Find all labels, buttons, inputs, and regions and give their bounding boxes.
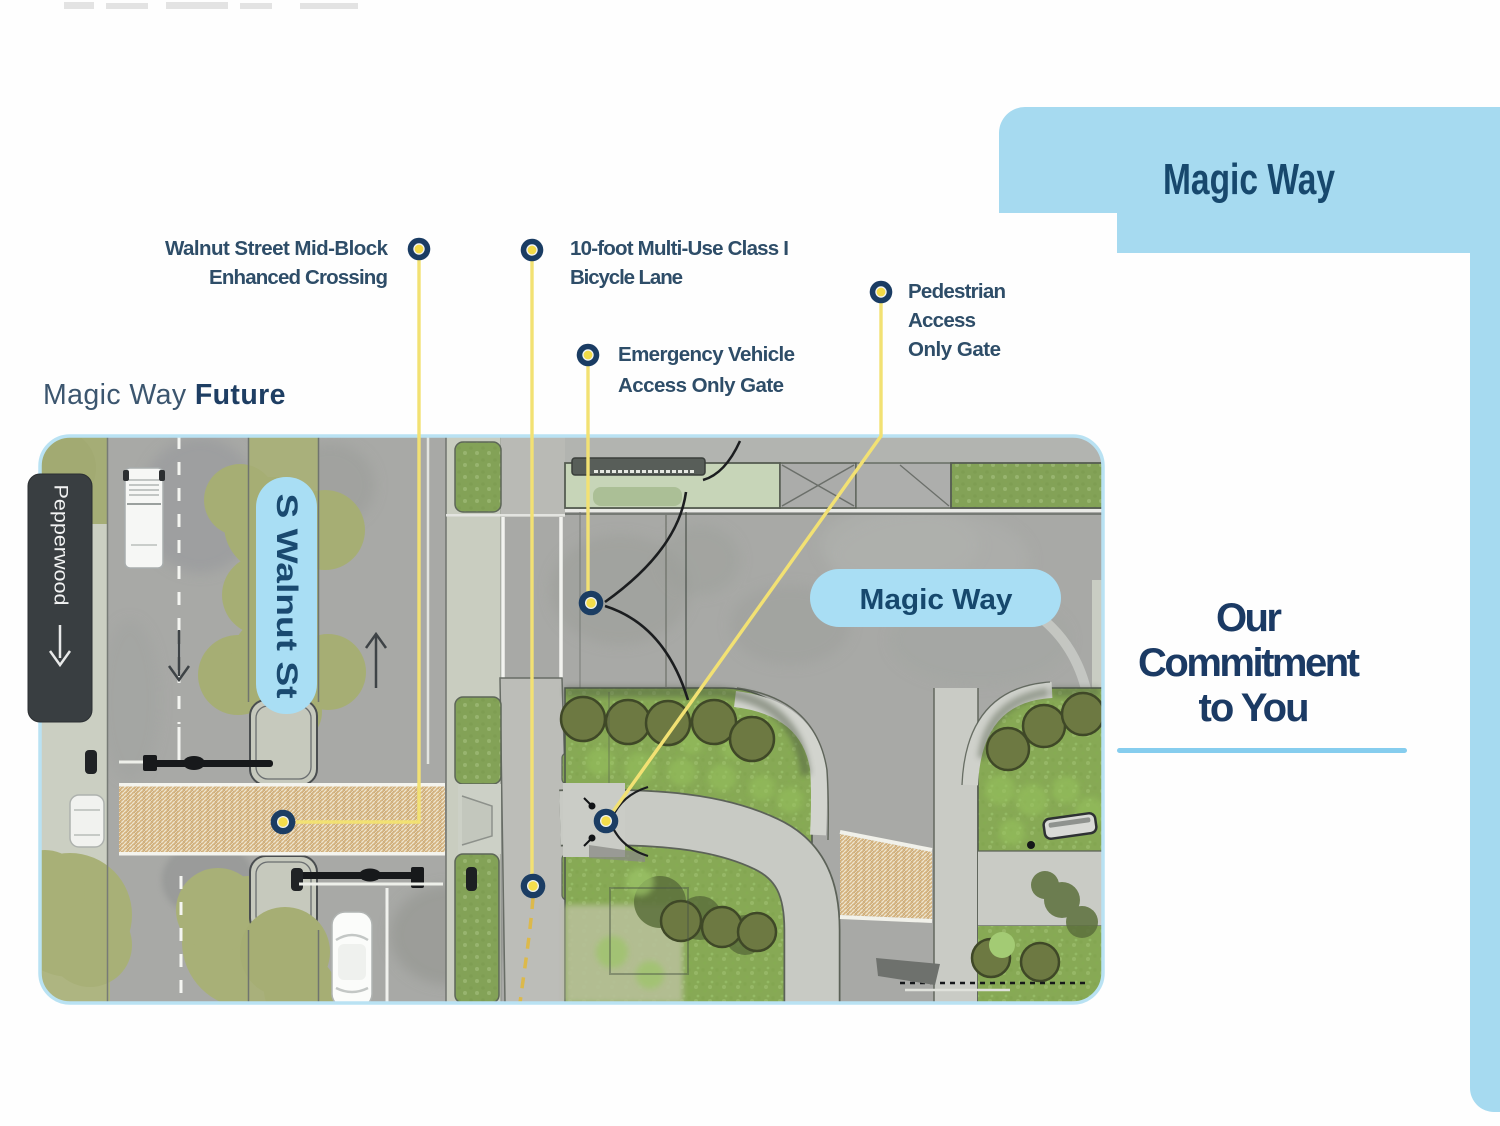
svg-text:to You: to You bbox=[1199, 686, 1310, 730]
svg-text:Magic Way: Magic Way bbox=[860, 584, 1013, 616]
svg-text:Enhanced Crossing: Enhanced Crossing bbox=[209, 266, 388, 289]
svg-text:10-foot Multi-Use Class I: 10-foot Multi-Use Class I bbox=[570, 237, 789, 260]
svg-text:Bicycle Lane: Bicycle Lane bbox=[570, 266, 683, 289]
svg-text:Commitment: Commitment bbox=[1138, 641, 1360, 685]
svg-text:Pedestrian: Pedestrian bbox=[908, 280, 1006, 303]
svg-text:Pepperwood: Pepperwood bbox=[50, 485, 71, 606]
svg-text:Magic Way: Magic Way bbox=[1163, 155, 1335, 204]
svg-text:Our: Our bbox=[1216, 596, 1282, 640]
svg-text:Only Gate: Only Gate bbox=[908, 338, 1001, 361]
svg-text:Access: Access bbox=[908, 309, 976, 332]
svg-text:Access Only Gate: Access Only Gate bbox=[618, 374, 784, 397]
svg-text:Emergency Vehicle: Emergency Vehicle bbox=[618, 343, 795, 366]
svg-text:Magic Way Future: Magic Way Future bbox=[43, 379, 286, 411]
svg-text:S Walnut St: S Walnut St bbox=[270, 494, 303, 699]
svg-text:Walnut Street Mid-Block: Walnut Street Mid-Block bbox=[165, 237, 389, 260]
